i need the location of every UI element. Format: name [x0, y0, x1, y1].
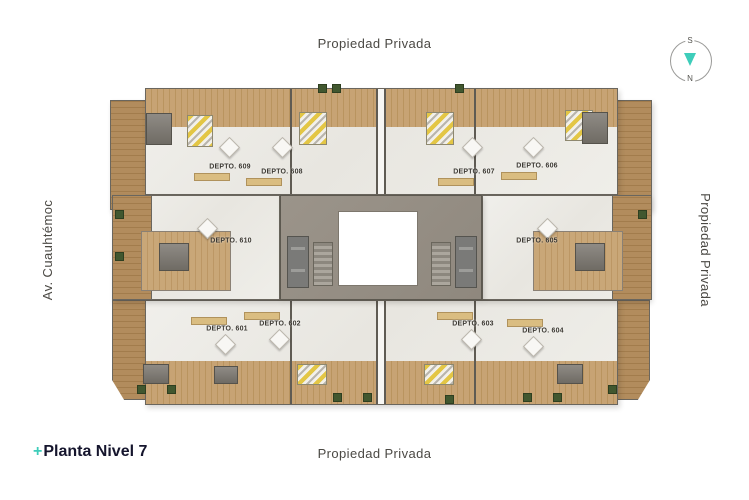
unit-label-608: DEPTO. 608: [261, 169, 303, 176]
bed: [582, 112, 608, 144]
band-bottom-units: [145, 300, 618, 405]
label-propiedad-privada-top: Propiedad Privada: [0, 36, 749, 51]
unit-label-610: DEPTO. 610: [210, 238, 252, 245]
kitchen-counter: [191, 317, 227, 325]
page-title: +Planta Nivel 7: [33, 443, 147, 461]
unit-label-603: DEPTO. 603: [452, 321, 494, 328]
planter: [455, 84, 464, 93]
floor-plan-render: DEPTO. 609 DEPTO. 608 DEPTO. 607 DEPTO. …: [110, 84, 652, 414]
kitchen-counter: [246, 178, 282, 186]
wing-left-unit-610: [112, 195, 280, 300]
planter: [167, 385, 176, 394]
elevator-right: [455, 236, 477, 288]
bed: [146, 113, 172, 145]
plus-mark-icon: +: [33, 443, 42, 460]
compass-north-label: N: [685, 75, 695, 83]
lightwell-gap: [376, 89, 386, 194]
bed: [143, 364, 169, 384]
kitchen-counter: [194, 173, 230, 181]
lightwell-gap: [376, 301, 386, 404]
label-propiedad-privada-right: Propiedad Privada: [698, 193, 713, 307]
bed: [557, 364, 583, 384]
wing-right-unit-605: [482, 195, 650, 300]
kitchen-counter: [437, 312, 473, 320]
kitchen-counter: [501, 172, 537, 180]
deck-left-top: [110, 100, 150, 210]
planter: [523, 393, 532, 402]
courtyard-void: [338, 211, 418, 286]
bed: [214, 366, 238, 384]
deck-right-top: [612, 100, 652, 210]
compass-south-label: S: [685, 37, 694, 45]
planter: [137, 385, 146, 394]
compass-needle-icon: [684, 53, 696, 66]
wall: [290, 301, 292, 404]
bed: [159, 243, 189, 271]
planter: [553, 393, 562, 402]
unit-label-605: DEPTO. 605: [516, 238, 558, 245]
planter: [115, 252, 124, 261]
planter: [445, 395, 454, 404]
planter: [115, 210, 124, 219]
wall: [474, 301, 476, 404]
compass: S N: [668, 38, 712, 82]
planter: [608, 385, 617, 394]
bed: [426, 112, 454, 145]
unit-label-604: DEPTO. 604: [522, 328, 564, 335]
unit-label-606: DEPTO. 606: [516, 163, 558, 170]
planter: [333, 393, 342, 402]
elevator-left: [287, 236, 309, 288]
kitchen-counter: [244, 312, 280, 320]
planter: [332, 84, 341, 93]
unit-label-602: DEPTO. 602: [259, 321, 301, 328]
wall: [290, 89, 292, 194]
planter: [363, 393, 372, 402]
unit-label-609: DEPTO. 609: [209, 164, 251, 171]
planter: [638, 210, 647, 219]
bed: [575, 243, 605, 271]
kitchen-counter: [507, 319, 543, 327]
circulation-core: [280, 195, 482, 300]
unit-label-607: DEPTO. 607: [453, 169, 495, 176]
bed: [297, 364, 327, 385]
bed: [424, 364, 454, 385]
planter: [318, 84, 327, 93]
stairs-right: [431, 242, 451, 286]
kitchen-counter: [438, 178, 474, 186]
stairs-left: [313, 242, 333, 286]
unit-label-601: DEPTO. 601: [206, 326, 248, 333]
bed: [187, 115, 213, 147]
bed: [299, 112, 327, 145]
label-av-cuauhtemoc: Av. Cuauhtémoc: [40, 200, 55, 301]
page-title-text: Planta Nivel 7: [43, 443, 147, 460]
